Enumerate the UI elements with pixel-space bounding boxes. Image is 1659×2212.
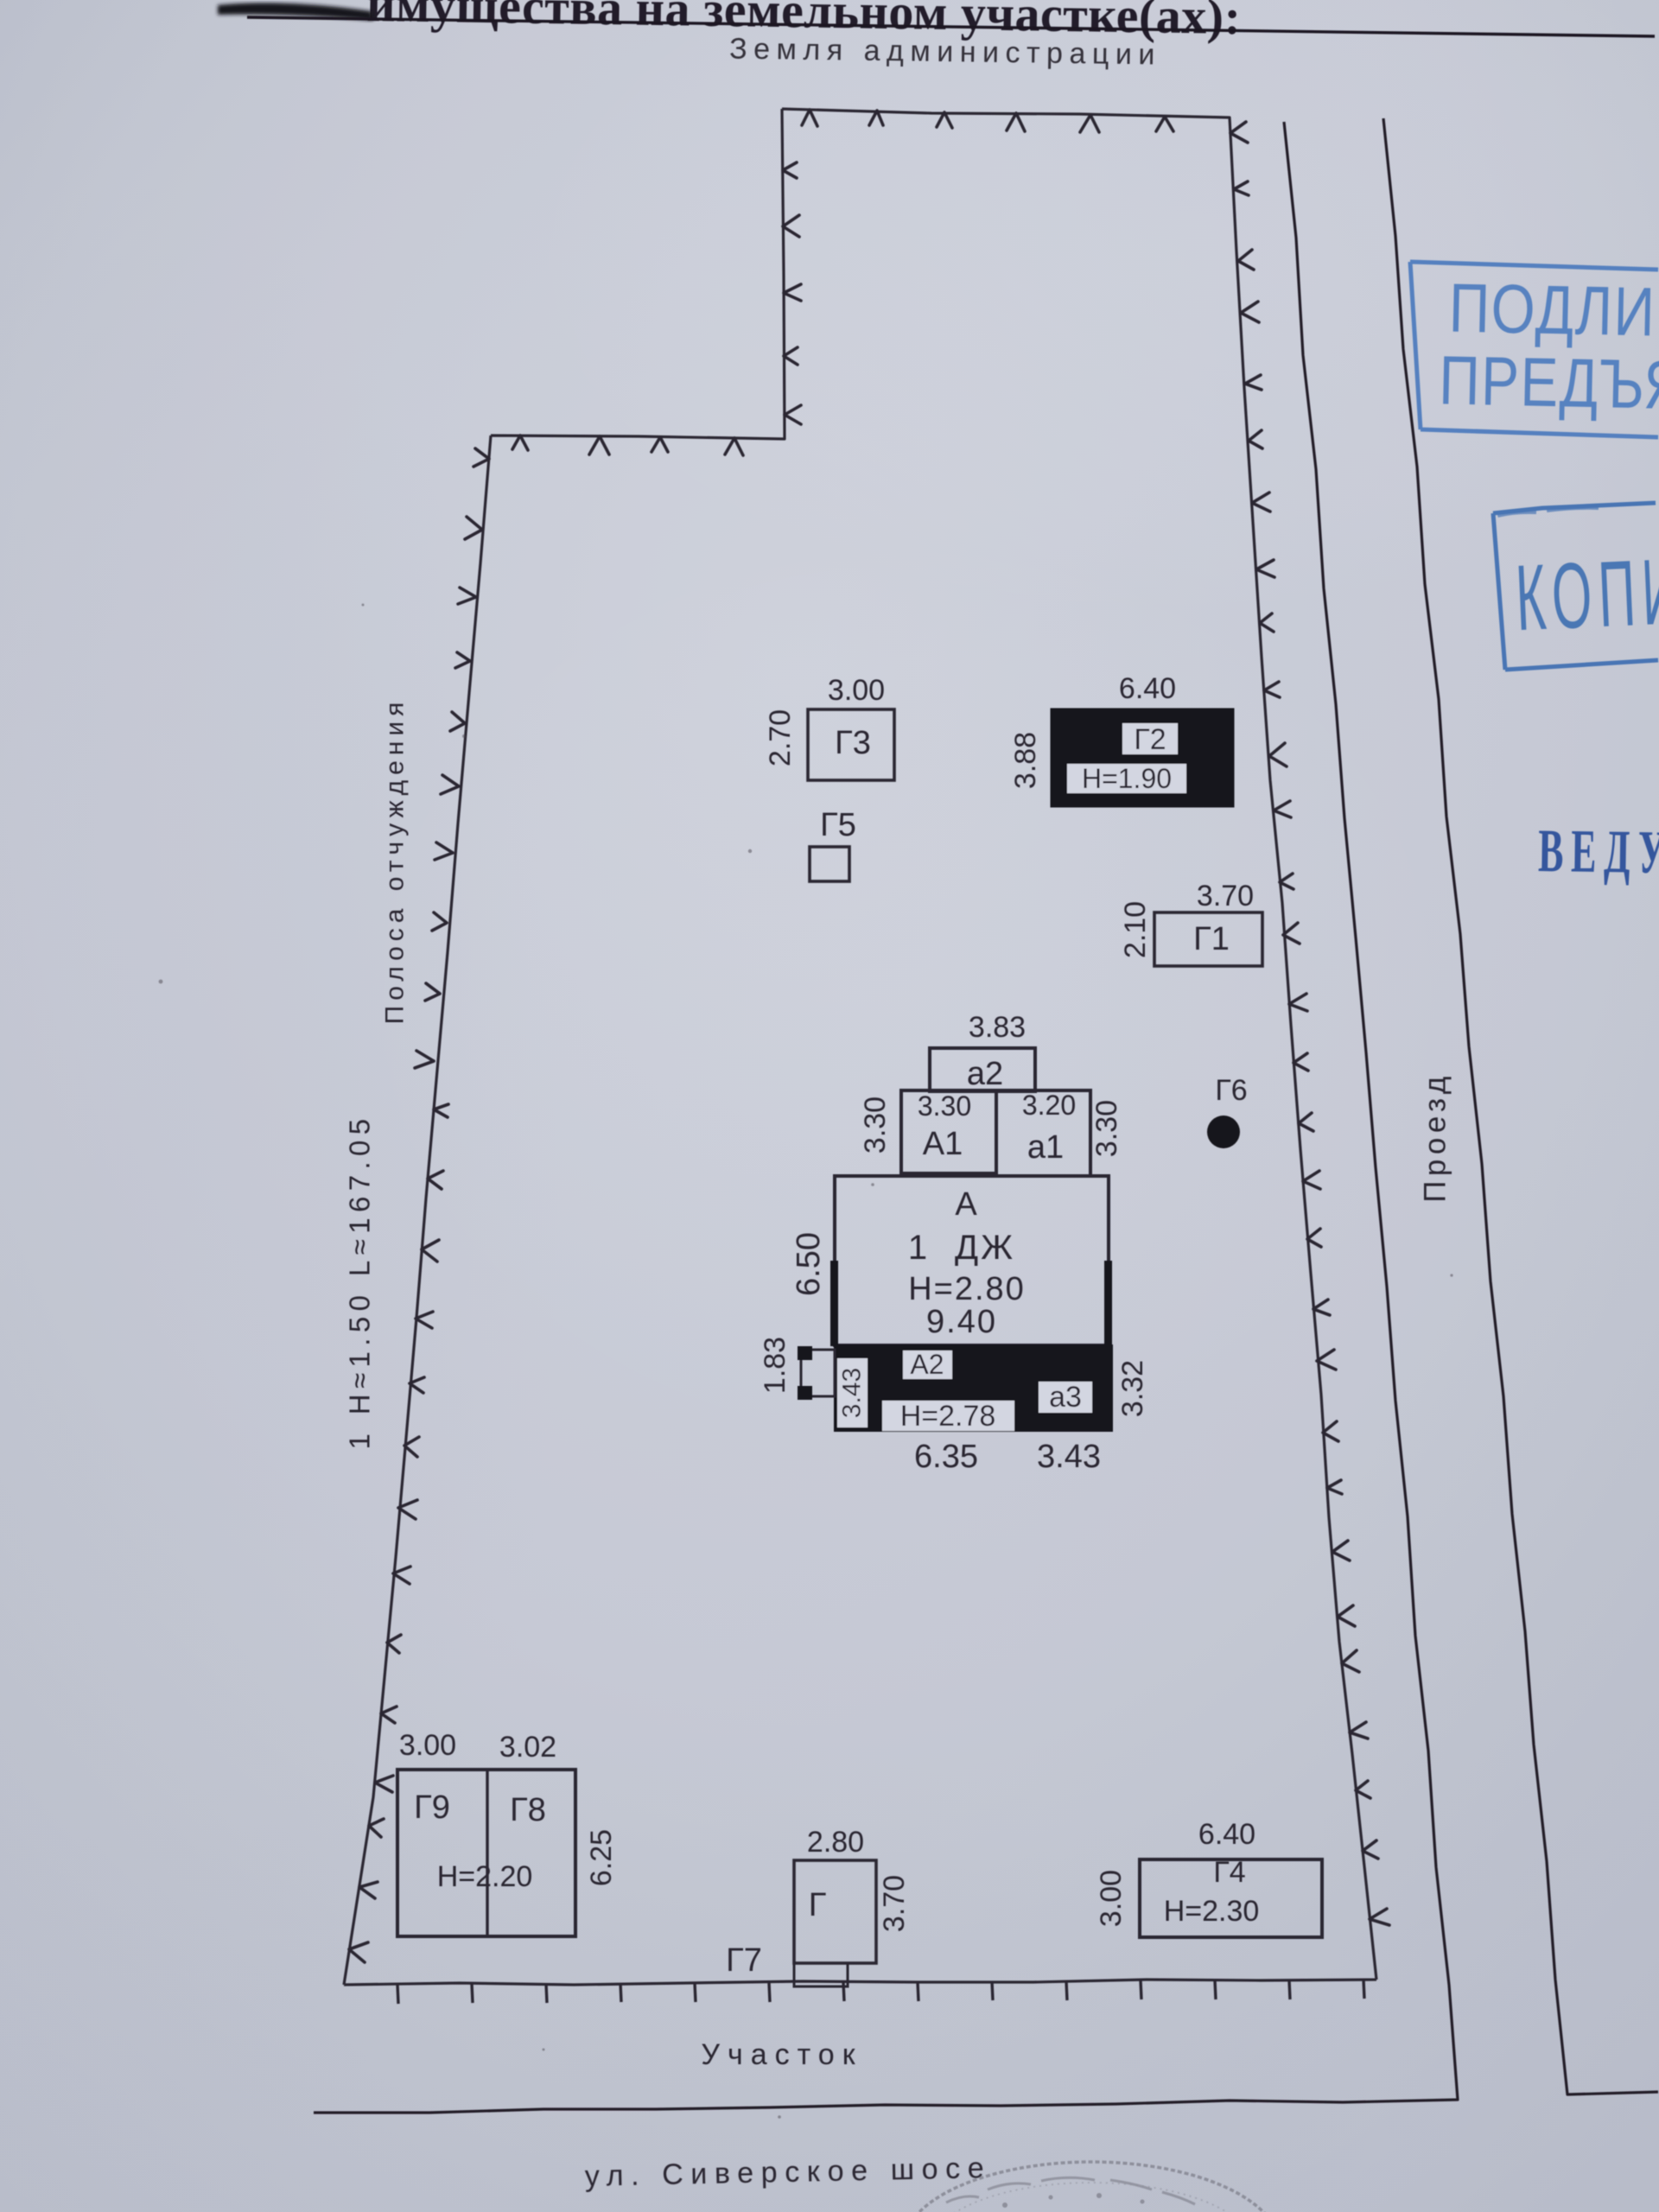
svg-text:Участок: Участок <box>701 2038 862 2071</box>
svg-text:Полоса отчуждения: Полоса отчуждения <box>381 697 410 1025</box>
svg-text:Н=2.20: Н=2.20 <box>437 1860 533 1893</box>
svg-text:6.25: 6.25 <box>585 1829 618 1886</box>
svg-text:а2: а2 <box>967 1056 1003 1092</box>
svg-text:ДЖ: ДЖ <box>955 1229 1015 1267</box>
svg-text:3.43: 3.43 <box>1037 1439 1101 1475</box>
svg-text:3.30: 3.30 <box>859 1096 892 1154</box>
svg-text:2.80: 2.80 <box>807 1826 864 1859</box>
svg-text:Н=2.30: Н=2.30 <box>1164 1895 1260 1928</box>
svg-text:а3: а3 <box>1049 1381 1082 1414</box>
svg-text:3.30: 3.30 <box>1090 1100 1123 1157</box>
svg-text:Г8: Г8 <box>510 1792 546 1828</box>
svg-text:6.35: 6.35 <box>914 1439 978 1475</box>
svg-text:Г9: Г9 <box>414 1789 450 1826</box>
svg-text:Земля администрации: Земля администрации <box>729 33 1161 72</box>
svg-text:6.40: 6.40 <box>1119 672 1176 705</box>
svg-text:а1: а1 <box>1027 1129 1064 1166</box>
svg-text:ПОДЛИ: ПОДЛИ <box>1448 269 1656 351</box>
svg-text:3.00: 3.00 <box>1095 1870 1128 1927</box>
svg-text:3.30: 3.30 <box>918 1090 971 1122</box>
svg-text:6.50: 6.50 <box>791 1232 827 1296</box>
svg-text:3.02: 3.02 <box>499 1731 556 1764</box>
svg-text:Проезд: Проезд <box>1419 1071 1452 1202</box>
svg-text:1: 1 <box>908 1229 927 1267</box>
svg-text:Н=2.80: Н=2.80 <box>908 1271 1026 1307</box>
svg-text:Н=2.78: Н=2.78 <box>900 1400 996 1433</box>
svg-text:Г: Г <box>809 1887 827 1923</box>
svg-text:1 Н≈1.50 L≈167.05: 1 Н≈1.50 L≈167.05 <box>344 1113 376 1449</box>
svg-text:3.00: 3.00 <box>828 674 885 707</box>
svg-text:Г1: Г1 <box>1193 921 1230 957</box>
svg-text:ВЕДУЩ: ВЕДУЩ <box>1538 816 1659 887</box>
svg-text:А1: А1 <box>923 1126 963 1162</box>
svg-text:Г4: Г4 <box>1213 1856 1245 1889</box>
svg-text:Г5: Г5 <box>820 807 856 843</box>
svg-text:3.70: 3.70 <box>878 1875 911 1932</box>
svg-text:3.43: 3.43 <box>838 1368 867 1418</box>
svg-text:Г7: Г7 <box>726 1942 762 1979</box>
svg-text:3.70: 3.70 <box>1197 880 1254 912</box>
svg-text:А2: А2 <box>910 1349 944 1380</box>
svg-text:3.83: 3.83 <box>969 1011 1026 1044</box>
svg-text:Н=1.90: Н=1.90 <box>1082 763 1172 794</box>
svg-text:9.40: 9.40 <box>926 1304 997 1340</box>
svg-text:3.32: 3.32 <box>1116 1360 1149 1417</box>
svg-text:Г3: Г3 <box>835 725 871 761</box>
svg-text:Г2: Г2 <box>1134 723 1166 756</box>
svg-text:А: А <box>955 1186 977 1223</box>
svg-text:Г6: Г6 <box>1215 1074 1247 1107</box>
svg-text:ПРЕДЪЯ: ПРЕДЪЯ <box>1438 341 1659 424</box>
svg-text:3.88: 3.88 <box>1009 732 1042 789</box>
svg-text:1.83: 1.83 <box>759 1337 791 1394</box>
svg-text:3.20: 3.20 <box>1022 1090 1076 1121</box>
svg-text:6.40: 6.40 <box>1198 1818 1255 1851</box>
svg-text:2.70: 2.70 <box>764 709 797 766</box>
svg-text:3.00: 3.00 <box>399 1729 456 1762</box>
svg-text:2.10: 2.10 <box>1119 901 1152 958</box>
svg-text:КОПИ: КОПИ <box>1514 539 1659 651</box>
